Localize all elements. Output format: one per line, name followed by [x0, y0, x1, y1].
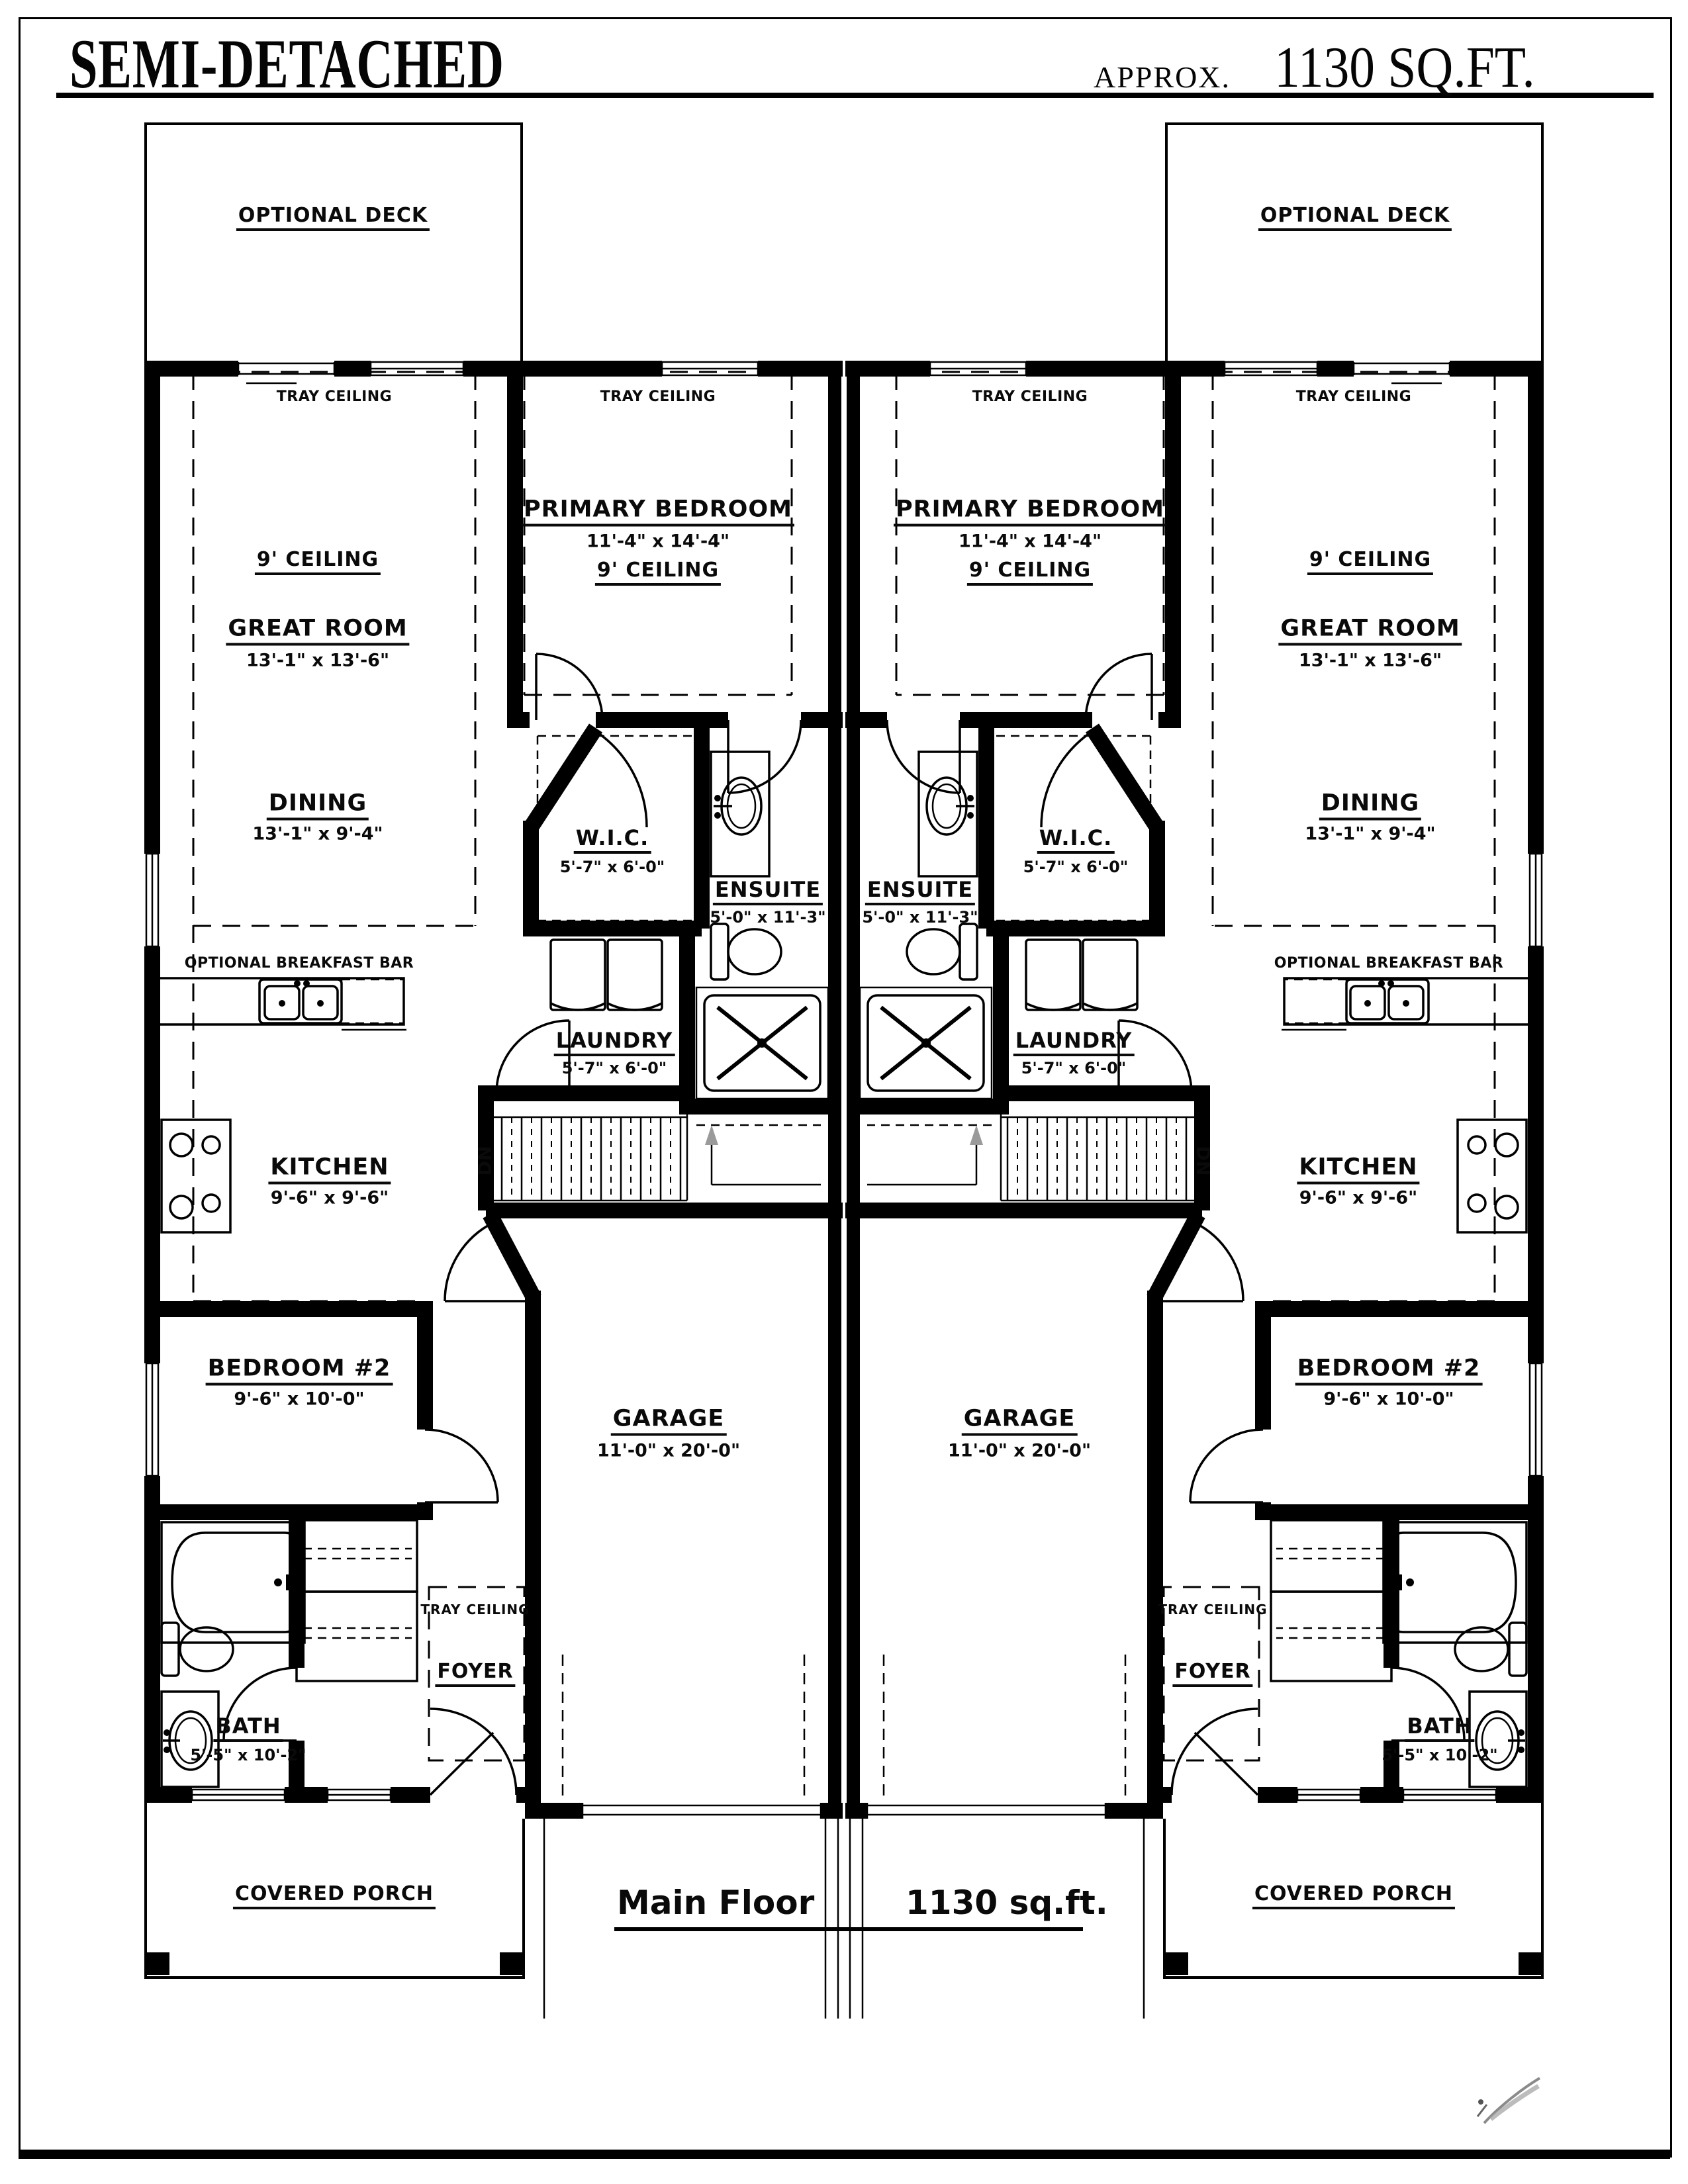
- label-tray-primary-right: TRAY CEILING: [972, 390, 1088, 404]
- label-primary-right: PRIMARY BEDROOM: [894, 498, 1166, 527]
- closet-lower: [297, 1592, 417, 1681]
- garage-chamfer-wall: [490, 1214, 534, 1298]
- label-ceiling-great-right: 9' CEILING: [1307, 550, 1433, 575]
- floor-area: 1130 sq.ft.: [906, 1884, 1108, 1922]
- dims-wic-left: 5'-7" x 6'-0": [560, 859, 665, 875]
- label-tray-foyer-right: TRAY CEILING: [1158, 1603, 1267, 1616]
- label-bath-left: BATH: [213, 1715, 283, 1742]
- label-laundry-left: LAUNDRY: [554, 1030, 675, 1056]
- label-ceiling-primary-right: 9' CEILING: [967, 561, 1093, 586]
- primary-door-icon: [536, 654, 602, 720]
- label-breakfast-bar-left: OPTIONAL BREAKFAST BAR: [185, 956, 414, 971]
- label-ceiling-primary-left: 9' CEILING: [595, 561, 721, 586]
- tub-faucet-plate: [286, 1574, 294, 1590]
- dims-bath-right: 5'-5" x 10'-2": [1382, 1747, 1497, 1763]
- label-kitchen-left: KITCHEN: [268, 1156, 391, 1185]
- label-ceiling-great-left: 9' CEILING: [255, 550, 381, 575]
- dims-primary-left: 11'-4" x 14'-4": [586, 533, 729, 551]
- label-tray-great-right: TRAY CEILING: [1296, 390, 1412, 404]
- label-porch-right: COVERED PORCH: [1252, 1884, 1455, 1909]
- dryer-icon: [608, 940, 662, 1010]
- dims-dining-right: 13'-1" x 9'-4": [1305, 825, 1435, 843]
- stove-icon: [162, 1120, 230, 1232]
- washer-icon: [551, 940, 605, 1010]
- bath-faucet-a: [164, 1729, 170, 1736]
- dims-great-room-right: 13'-1" x 13'-6": [1299, 652, 1442, 670]
- ensuite-toilet-bowl-icon: [728, 929, 781, 974]
- bedroom2-door-icon: [425, 1430, 498, 1502]
- dims-bedroom2-right: 9'-6" x 10'-0": [1323, 1390, 1454, 1408]
- burner-4: [203, 1195, 220, 1212]
- dims-bedroom2-left: 9'-6" x 10'-0": [234, 1390, 364, 1408]
- bedroom2-window-icon: [146, 1363, 158, 1476]
- label-wic-right: W.I.C.: [1037, 827, 1115, 854]
- label-dn-left: DN: [477, 1146, 494, 1175]
- label-bath-right: BATH: [1405, 1715, 1474, 1742]
- label-ensuite-left: ENSUITE: [713, 879, 823, 905]
- wic-door-icon: [596, 731, 647, 827]
- dining-window-icon: [146, 854, 158, 946]
- sink-drain-right: [317, 1000, 324, 1007]
- label-breakfast-bar-right: OPTIONAL BREAKFAST BAR: [1274, 956, 1503, 971]
- dims-laundry-left: 5'-7" x 6'-0": [562, 1060, 667, 1076]
- sink-drain-left: [279, 1000, 285, 1007]
- label-garage-right: GARAGE: [962, 1408, 1078, 1436]
- bath-faucet-b: [164, 1747, 170, 1753]
- bath-window-icon: [192, 1790, 285, 1800]
- label-bedroom2-left: BEDROOM #2: [206, 1357, 393, 1386]
- stair-direction-line: [712, 1145, 821, 1185]
- laundry-machines: [551, 940, 662, 1010]
- ensuite-toilet-tank: [711, 924, 728, 979]
- primary-window-icon: [662, 362, 758, 375]
- greatroom-window-icon: [371, 362, 463, 375]
- dims-bath-left: 5'-5" x 10'-2": [190, 1747, 306, 1763]
- floor-name: Main Floor: [617, 1884, 814, 1922]
- sink-faucet-right: [303, 980, 310, 987]
- label-tray-primary-left: TRAY CEILING: [600, 390, 716, 404]
- dims-dining-left: 13'-1" x 9'-4": [252, 825, 383, 843]
- label-garage-left: GARAGE: [611, 1408, 727, 1436]
- label-foyer-right: FOYER: [1172, 1662, 1252, 1687]
- ensuite-faucet-b: [714, 812, 721, 819]
- label-tray-foyer-left: TRAY CEILING: [420, 1603, 530, 1616]
- label-foyer-left: FOYER: [435, 1662, 515, 1687]
- deck-outline: [146, 124, 522, 361]
- label-dn-right: DN: [1194, 1146, 1212, 1175]
- garage-door-icon: [583, 1803, 821, 1819]
- label-dining-left: DINING: [267, 792, 369, 821]
- breakfast-bar-dash: [342, 979, 404, 1023]
- label-wic-left: W.I.C.: [574, 827, 651, 854]
- porch-post-left: [147, 1952, 169, 1975]
- hall-closets: [297, 1520, 417, 1681]
- floor-plan-svg: [0, 0, 1688, 2184]
- signature-mark: [1477, 2078, 1540, 2123]
- label-deck-right: OPTIONAL DECK: [1258, 206, 1452, 231]
- label-great-room-right: GREAT ROOM: [1278, 617, 1462, 646]
- dims-primary-right: 11'-4" x 14'-4": [959, 533, 1102, 551]
- dims-wic-right: 5'-7" x 6'-0": [1023, 859, 1129, 875]
- label-kitchen-right: KITCHEN: [1297, 1156, 1419, 1185]
- front-door-icon: [430, 1709, 516, 1795]
- foyer-window-icon: [328, 1790, 391, 1800]
- label-deck-left: OPTIONAL DECK: [236, 206, 430, 231]
- bath-toilet-bowl-icon: [180, 1627, 233, 1671]
- sink-faucet-left: [294, 980, 301, 987]
- tub-faucet-dot: [274, 1578, 282, 1586]
- label-bedroom2-right: BEDROOM #2: [1295, 1357, 1483, 1386]
- label-great-room-left: GREAT ROOM: [226, 617, 409, 646]
- label-porch-left: COVERED PORCH: [233, 1884, 436, 1909]
- shower-drain: [757, 1038, 767, 1048]
- wic-chamfer-wall: [531, 728, 596, 827]
- ensuite-faucet-a: [714, 795, 721, 801]
- dims-garage-right: 11'-0" x 20'-0": [948, 1442, 1091, 1460]
- footer-underline: [614, 1927, 1083, 1931]
- dims-garage-left: 11'-0" x 20'-0": [597, 1442, 740, 1460]
- bath-toilet-tank: [162, 1623, 179, 1676]
- burner-2: [203, 1136, 220, 1154]
- stair-direction-arrow-icon: [705, 1125, 718, 1145]
- dims-ensuite-right: 5'-0" x 11'-3": [862, 909, 978, 925]
- porch-post-right: [500, 1952, 522, 1975]
- closet-shelf-dash: [303, 1549, 412, 1638]
- label-dining-right: DINING: [1319, 792, 1421, 821]
- floor-plan-page: SEMI-DETACHED APPROX. 1130 SQ.FT.: [0, 0, 1688, 2184]
- stair-tread-dashes: [512, 1117, 671, 1201]
- burner-1: [170, 1134, 193, 1156]
- dims-ensuite-left: 5'-0" x 11'-3": [710, 909, 825, 925]
- staircase: [494, 1115, 821, 1201]
- closet-upper: [297, 1520, 417, 1592]
- label-primary-left: PRIMARY BEDROOM: [522, 498, 794, 527]
- ensuite-door-icon: [728, 720, 801, 793]
- dims-laundry-right: 5'-7" x 6'-0": [1021, 1060, 1127, 1076]
- label-ensuite-right: ENSUITE: [865, 879, 975, 905]
- dims-kitchen-right: 9'-6" x 9'-6": [1299, 1189, 1417, 1207]
- dims-kitchen-left: 9'-6" x 9'-6": [271, 1189, 389, 1207]
- burner-3: [170, 1196, 193, 1218]
- label-tray-great-left: TRAY CEILING: [277, 390, 393, 404]
- label-laundry-right: LAUNDRY: [1013, 1030, 1135, 1056]
- machine-fronts: [551, 1003, 662, 1010]
- dims-great-room-left: 13'-1" x 13'-6": [246, 652, 389, 670]
- garage-door-track-dash: [563, 1655, 804, 1803]
